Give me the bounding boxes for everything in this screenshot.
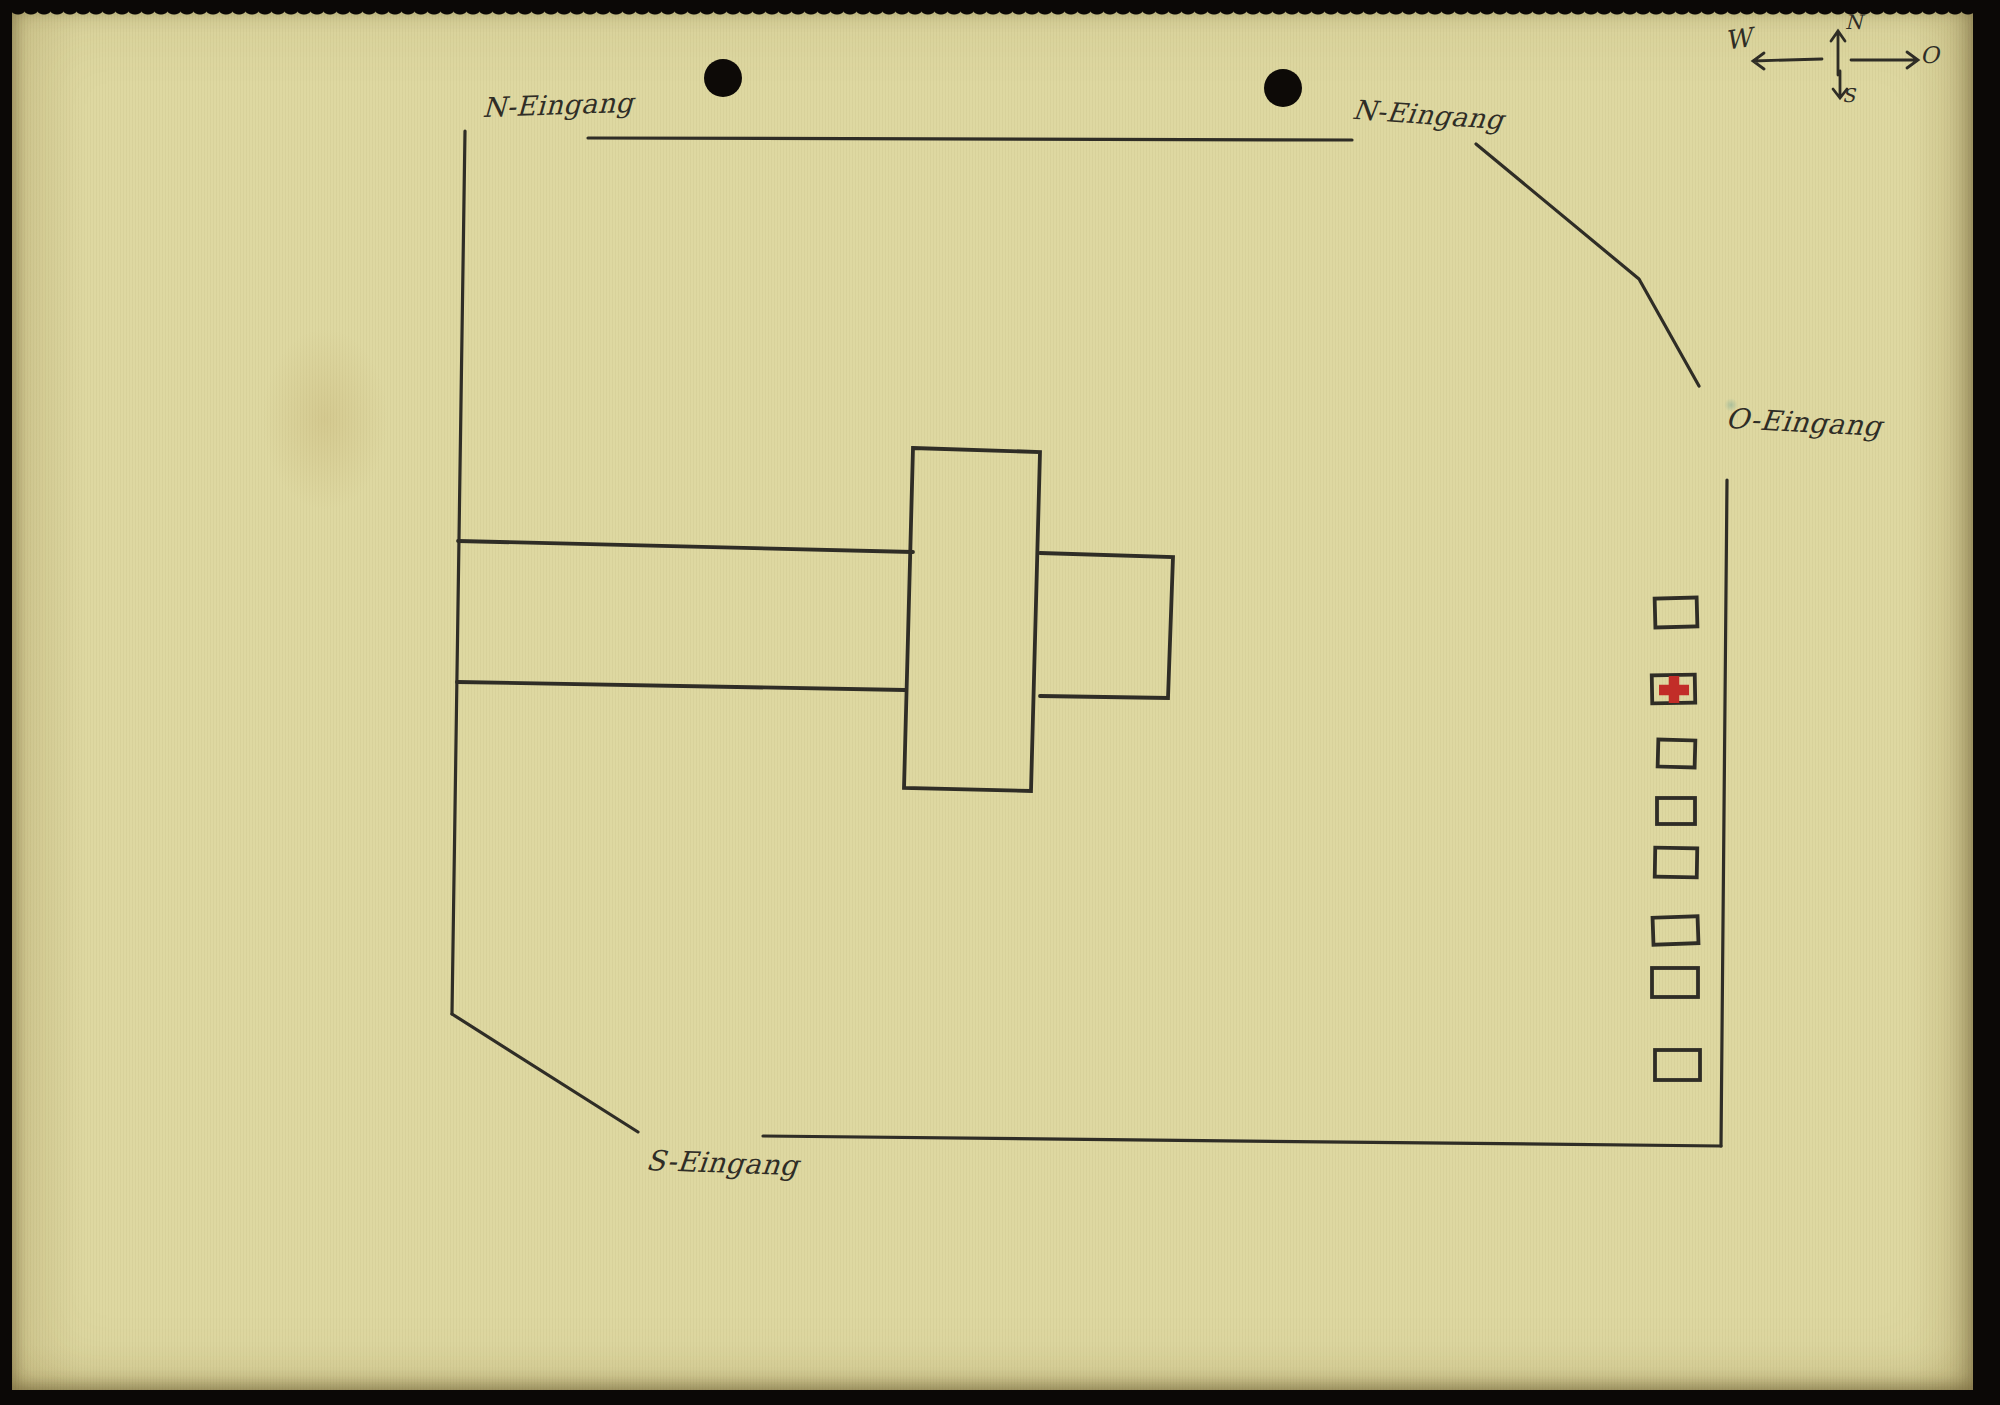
red-cross-icon: [1659, 676, 1689, 703]
punch-hole: [1264, 69, 1302, 107]
northeast-boundary-line: [1476, 144, 1699, 386]
main-building: [457, 448, 1173, 791]
photo-background: N-Eingang N-Eingang O-Eingang S-Eingang …: [0, 0, 2000, 1405]
perimeter-fence: [452, 131, 1727, 1146]
compass-north-arrow-icon: [1831, 31, 1845, 75]
compass-north-label: N: [1845, 10, 1863, 34]
north-boundary-line: [588, 138, 1352, 140]
outbuilding: [1655, 1050, 1700, 1080]
west-boundary-line: [452, 131, 465, 1014]
main-building-center-wing: [904, 448, 1040, 791]
outbuilding: [1658, 740, 1696, 768]
southwest-boundary-line: [452, 1014, 638, 1132]
outbuilding: [1657, 798, 1695, 824]
compass-east-label: O: [1920, 42, 1939, 68]
outbuilding: [1653, 916, 1699, 945]
outbuilding: [1655, 848, 1697, 878]
outbuilding: [1652, 968, 1698, 997]
main-building-west-wing-bottom-line: [457, 682, 905, 690]
north-entrance-label-west: N-Eingang: [482, 87, 634, 123]
east-boundary-line: [1721, 480, 1727, 1146]
main-building-west-wing-top-line: [458, 541, 913, 552]
main-building-east-wing: [1040, 553, 1173, 698]
outbuilding-row: [1652, 597, 1700, 1080]
site-plan-drawing: [0, 0, 2000, 1405]
outbuilding: [1655, 597, 1698, 627]
compass-south-label: S: [1842, 84, 1855, 106]
compass-west-arrow-icon: [1753, 53, 1822, 69]
punch-hole: [704, 59, 742, 97]
compass-east-arrow-icon: [1851, 52, 1918, 68]
compass-rose: [1753, 31, 1918, 98]
south-entrance-label: S-Eingang: [645, 1144, 801, 1182]
south-boundary-line: [763, 1136, 1721, 1146]
compass-west-label: W: [1723, 22, 1754, 55]
punch-holes: [704, 59, 1302, 107]
